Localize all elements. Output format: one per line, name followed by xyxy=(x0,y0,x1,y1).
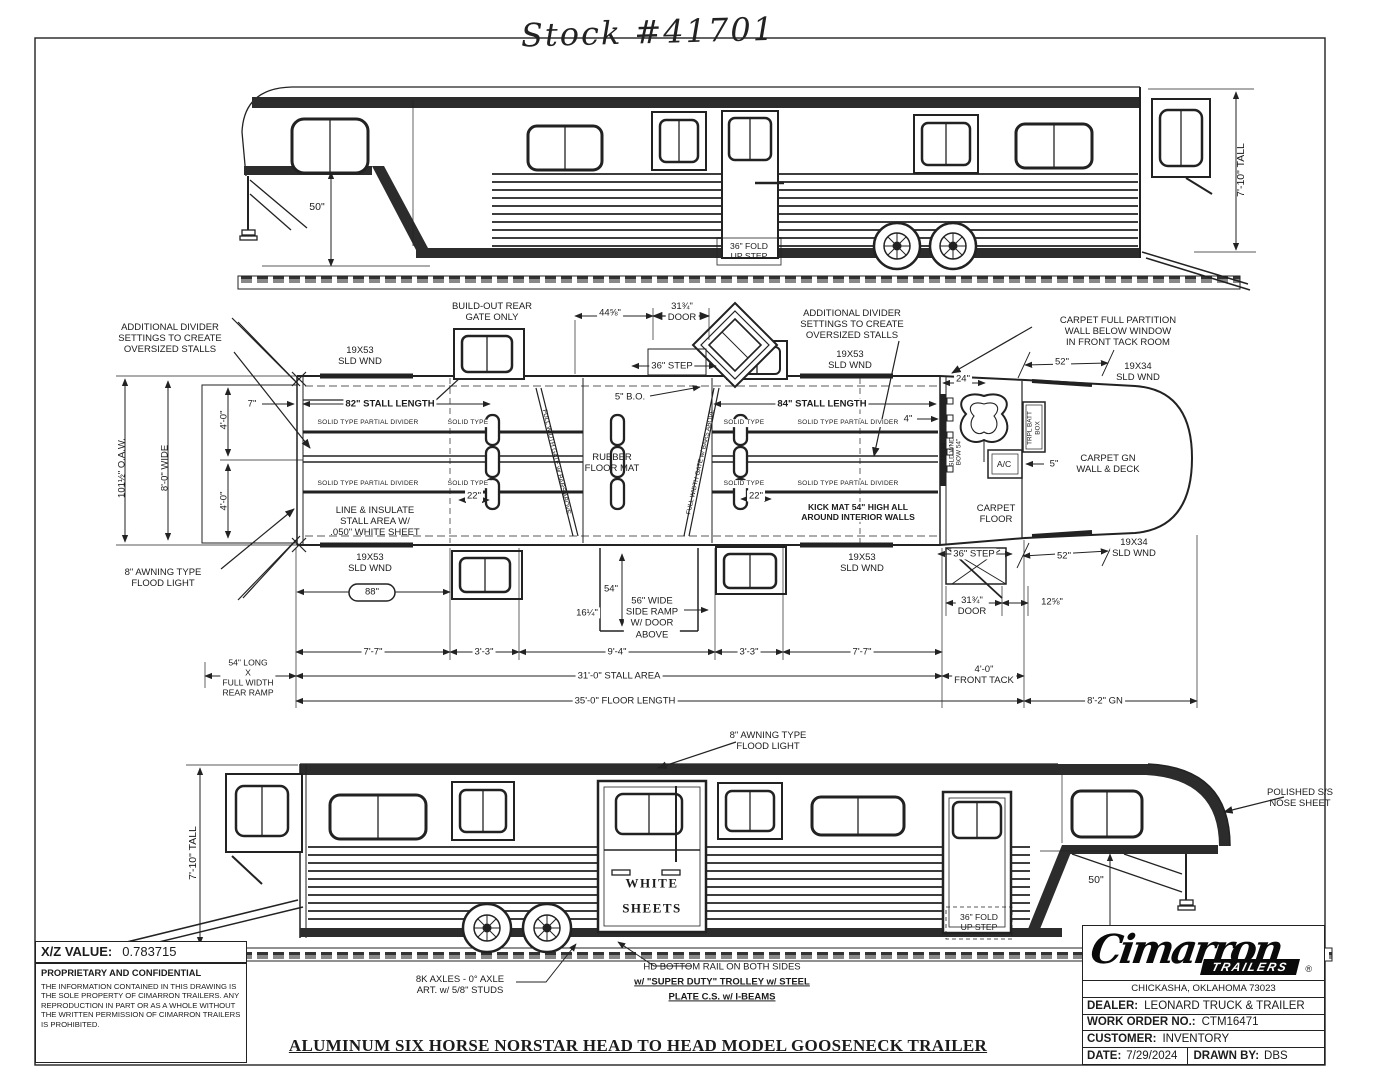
dim-door-bottom: 31¾" DOOR xyxy=(956,595,989,617)
label-carpet-gn: CARPET GN WALL & DECK xyxy=(1076,453,1139,475)
dim-stall-82: 82" STALL LENGTH xyxy=(343,398,436,409)
dim-front-tack: 4'-0" FRONT TACK xyxy=(952,664,1016,686)
drawn-by-label: DRAWN BY: xyxy=(1193,1050,1259,1062)
dim-4: 4" xyxy=(902,413,915,424)
label-solid-type-4: SOLID TYPE xyxy=(722,480,767,488)
dim-step-bottom: 36" STEP xyxy=(951,548,996,559)
note-kick-mat: KICK MAT 54" HIGH ALL AROUND INTERIOR WA… xyxy=(799,502,917,522)
label-solid-partial-1: SOLID TYPE PARTIAL DIVIDER xyxy=(316,419,421,427)
dim-88: 88" xyxy=(365,586,379,597)
dim-floor-length: 35'-0" FLOOR LENGTH xyxy=(573,695,678,706)
date-value: 7/29/2024 xyxy=(1126,1050,1177,1062)
cimarron-logo-trailers: TRAILERS xyxy=(1200,959,1300,975)
xz-value-box: X/Z VALUE: 0.783715 xyxy=(35,941,247,963)
proprietary-box: PROPRIETARY AND CONFIDENTIAL THE INFORMA… xyxy=(35,963,247,1063)
window-19x53-top-right: 19X53 SLD WND xyxy=(828,349,872,371)
blueprint-canvas: Stock #41701 50" 36" FOLD UP STEP 7'-10"… xyxy=(0,0,1399,1080)
workorder-label: WORK ORDER NO.: xyxy=(1087,1016,1196,1028)
dim-24: 24" xyxy=(954,373,972,384)
customer-label: CUSTOMER: xyxy=(1087,1033,1156,1045)
window-19x34-bow: 19X34 SLD WND BOW 54" xyxy=(941,437,964,466)
dim-22-left: 22" xyxy=(465,490,483,501)
label-solid-partial-2: SOLID TYPE PARTIAL DIVIDER xyxy=(316,480,421,488)
registered-mark-icon: ® xyxy=(1305,964,1312,974)
dim-trailer-height: 7'-10" TALL xyxy=(1235,143,1247,197)
note-hd-rail-1: HD BOTTOM RAIL ON BOTH SIDES xyxy=(643,961,800,972)
dim-stall-84: 84" STALL LENGTH xyxy=(775,398,868,409)
label-trpl-batt-box: TRPL BATT BOX xyxy=(1026,411,1041,445)
dim-gn-length: 8'-2" GN xyxy=(1085,695,1125,706)
dim-trailer-height-bottom: 7'-10" TALL xyxy=(187,826,199,880)
window-19x34-top-right: 19X34 SLD WND xyxy=(1114,361,1162,383)
fold-up-step-label: 36" FOLD UP STEP xyxy=(730,241,768,261)
dealer-value: LEONARD TRUCK & TRAILER xyxy=(1144,1000,1305,1012)
label-solid-type-3: SOLID TYPE xyxy=(722,419,767,427)
dealer-label: DEALER: xyxy=(1087,1000,1138,1012)
dim-7-7-right: 7'-7" xyxy=(851,646,874,657)
dim-7-7-left: 7'-7" xyxy=(362,646,385,657)
proprietary-text: THE INFORMATION CONTAINED IN THIS DRAWIN… xyxy=(36,980,246,1031)
note-axles: 8K AXLES - 0° AXLE ART. w/ 5/8" STUDS xyxy=(416,974,504,996)
dim-52-top: 52" xyxy=(1053,356,1071,367)
title-block-city: CHICKASHA, OKLAHOMA 73023 xyxy=(1083,981,1324,998)
xz-label: X/Z VALUE: xyxy=(41,944,112,959)
window-19x53-bottom-right: 19X53 SLD WND xyxy=(840,552,884,574)
drawing-linework xyxy=(0,0,1399,1080)
note-hd-rail-3: PLATE C.S. w/ I-BEAMS xyxy=(669,991,776,1002)
dim-22-right: 22" xyxy=(747,490,765,501)
dim-54-ramp: 54" xyxy=(602,583,620,594)
note-line-insulate: LINE & INSULATE STALL AREA W/ .050" WHIT… xyxy=(330,505,419,539)
dim-8ft-wide: 8'-0" WIDE xyxy=(159,445,170,491)
note-divider-settings-right: ADDITIONAL DIVIDER SETTINGS TO CREATE OV… xyxy=(800,308,903,342)
dim-7: 7" xyxy=(248,398,257,409)
label-solid-partial-4: SOLID TYPE PARTIAL DIVIDER xyxy=(796,480,901,488)
customer-value: INVENTORY xyxy=(1162,1033,1229,1045)
note-buildout-rear-gate: BUILD-OUT REAR GATE ONLY xyxy=(452,301,532,323)
title-block: Cimarron TRAILERS ® CHICKASHA, OKLAHOMA … xyxy=(1082,925,1325,1065)
window-19x34-bottom-right: 19X34 SLD WND xyxy=(1110,537,1158,559)
proprietary-title: PROPRIETARY AND CONFIDENTIAL xyxy=(36,964,246,980)
dim-4ft-upper: 4'-0" xyxy=(218,411,229,430)
label-ac-unit: A/C xyxy=(997,459,1011,469)
note-polished-nose: POLISHED S/S NOSE SHEET xyxy=(1267,787,1333,809)
label-solid-partial-3: SOLID TYPE PARTIAL DIVIDER xyxy=(796,419,901,427)
label-carpet-floor: CARPET FLOOR xyxy=(977,503,1016,525)
dim-gooseneck-height-bottom: 50" xyxy=(1086,874,1105,886)
dim-door-top: 31¾" DOOR xyxy=(666,301,699,323)
window-19x53-top-left: 19X53 SLD WND xyxy=(338,345,382,367)
title-block-customer-row: CUSTOMER: INVENTORY xyxy=(1083,1031,1324,1047)
dim-5-bo: 5" B.O. xyxy=(613,391,647,402)
fold-up-step-label-bottom: 36" FOLD UP STEP xyxy=(960,912,998,932)
dim-12-58: 12⅝" xyxy=(1039,596,1065,607)
label-rubber-floor-mat: RUBBER FLOOR MAT xyxy=(585,452,640,474)
note-divider-settings-left: ADDITIONAL DIVIDER SETTINGS TO CREATE OV… xyxy=(118,322,221,356)
dim-3-3-right: 3'-3" xyxy=(738,646,761,657)
dim-step-top: 36" STEP xyxy=(649,360,694,371)
xz-value: 0.783715 xyxy=(122,944,176,959)
label-solid-type-1: SOLID TYPE xyxy=(446,419,491,427)
dim-oaw: 101½" O.A.W. xyxy=(116,438,127,498)
dim-52-bottom: 52" xyxy=(1055,550,1073,561)
dim-16-14: 16¼" xyxy=(574,607,600,618)
date-label: DATE: xyxy=(1087,1050,1121,1062)
note-rear-ramp: 54" LONG X FULL WIDTH REAR RAMP xyxy=(220,658,275,699)
drawing-title: ALUMINUM SIX HORSE NORSTAR HEAD TO HEAD … xyxy=(258,1036,1018,1056)
title-block-workorder-row: WORK ORDER NO.: CTM16471 xyxy=(1083,1015,1324,1031)
note-side-ramp: 56" WIDE SIDE RAMP W/ DOOR ABOVE xyxy=(624,596,680,641)
workorder-value: CTM16471 xyxy=(1202,1016,1259,1028)
dim-5-ac: 5" xyxy=(1050,458,1059,469)
dim-9-4: 9'-4" xyxy=(606,646,629,657)
window-19x53-bottom-left: 19X53 SLD WND xyxy=(348,552,392,574)
dim-44-58: 44⅝" xyxy=(597,307,623,318)
handwritten-stock-number: Stock #41701 xyxy=(520,11,775,55)
title-block-date-row: DATE: 7/29/2024 DRAWN BY: DBS xyxy=(1083,1048,1324,1064)
dim-4ft-lower: 4'-0" xyxy=(218,492,229,511)
dim-3-3-left: 3'-3" xyxy=(473,646,496,657)
dim-stall-area: 31'-0" STALL AREA xyxy=(576,670,663,681)
drawn-by-value: DBS xyxy=(1264,1050,1288,1062)
dim-gooseneck-height: 50" xyxy=(309,201,324,213)
note-hd-rail-2: w/ "SUPER DUTY" TROLLEY w/ STEEL xyxy=(634,976,810,987)
note-awning-flood-light-side: 8" AWNING TYPE FLOOD LIGHT xyxy=(730,730,807,752)
label-solid-type-2: SOLID TYPE xyxy=(446,480,491,488)
title-block-dealer-row: DEALER: LEONARD TRUCK & TRAILER xyxy=(1083,998,1324,1014)
label-white-sheets: WHITE SHEETS xyxy=(622,871,682,920)
cimarron-logo: Cimarron TRAILERS ® xyxy=(1083,926,1324,981)
note-carpet-partition: CARPET FULL PARTITION WALL BELOW WINDOW … xyxy=(1060,315,1176,349)
note-awning-flood-light-plan: 8" AWNING TYPE FLOOD LIGHT xyxy=(125,567,202,589)
